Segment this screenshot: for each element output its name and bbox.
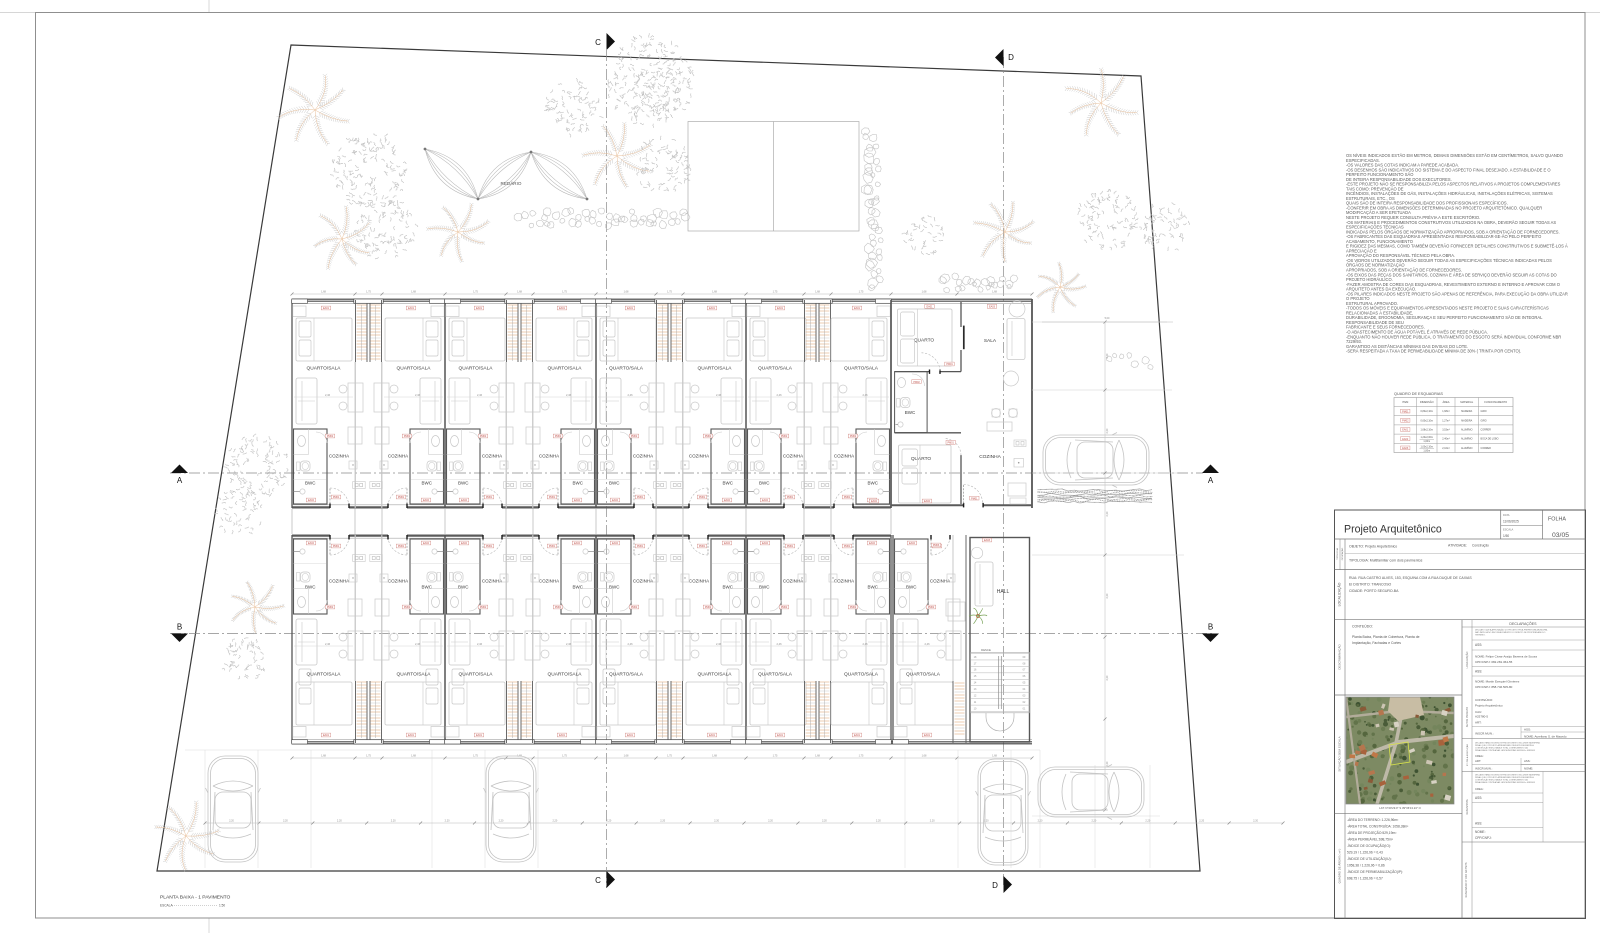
svg-text:AUTOR PROJETO: AUTOR PROJETO: [1466, 707, 1469, 727]
svg-text:1,68: 1,68: [321, 754, 326, 757]
svg-text:EA01: EA01: [408, 307, 415, 310]
svg-text:PM01: PM01: [333, 545, 340, 548]
svg-text:CREA:: CREA:: [1475, 754, 1484, 758]
svg-text:PM01: PM01: [844, 496, 851, 499]
svg-text:2,46: 2,46: [477, 642, 483, 646]
svg-text:2,20: 2,20: [1091, 819, 1096, 822]
svg-text:Planta Baixa, Planta de Cobert: Planta Baixa, Planta de Cobertura, Plant…: [1352, 635, 1420, 639]
svg-text:EA01: EA01: [627, 734, 634, 737]
svg-text:NOME: Aureliano S. de Macedo: NOME: Aureliano S. de Macedo: [1524, 735, 1567, 739]
svg-text:COZINHA: COZINHA: [979, 454, 1001, 460]
svg-text:2,20: 2,20: [229, 819, 234, 822]
svg-text:1,00x2,10m: 1,00x2,10m: [1421, 445, 1434, 448]
svg-text:LOCALIZAÇÃO: LOCALIZAÇÃO: [1337, 582, 1342, 606]
svg-text:1,75: 1,75: [667, 290, 672, 293]
svg-text:EA02: EA02: [1402, 438, 1409, 441]
svg-text:-ÍNDICE DE OCUPAÇÃO(IO):: -ÍNDICE DE OCUPAÇÃO(IO):: [1347, 843, 1391, 848]
svg-text:INSCR.MUN.:: INSCR.MUN.:: [1475, 732, 1494, 736]
svg-text:EA01: EA01: [559, 307, 566, 310]
svg-text:INSCR.MUN.:: INSCR.MUN.:: [1475, 767, 1493, 771]
svg-text:CONTEÚDO:: CONTEÚDO:: [1475, 697, 1493, 702]
svg-text:2,46: 2,46: [566, 393, 572, 397]
svg-text:QUARTO/SALA: QUARTO/SALA: [844, 366, 879, 372]
svg-text:1,75: 1,75: [366, 754, 371, 757]
svg-text:EA01: EA01: [1402, 429, 1409, 432]
svg-text:03/05: 03/05: [1552, 532, 1569, 539]
svg-text:QUARTO/SALA: QUARTO/SALA: [609, 672, 644, 678]
svg-text:ASS:: ASS:: [1524, 759, 1531, 763]
svg-text:COZINHA: COZINHA: [482, 579, 502, 584]
svg-text:A25780-5: A25780-5: [1475, 715, 1488, 719]
svg-text:1,75: 1,75: [859, 290, 864, 293]
svg-text:2,40m²: 2,40m²: [1442, 438, 1450, 441]
svg-text:PM01: PM01: [948, 441, 955, 444]
svg-text:GIRO: GIRO: [1481, 410, 1487, 413]
svg-text:EA02: EA02: [869, 542, 876, 545]
svg-text:2,20: 2,20: [1106, 353, 1109, 358]
svg-text:MATERIAL: MATERIAL: [1460, 400, 1473, 404]
svg-text:2,46: 2,46: [325, 393, 331, 397]
svg-text:EA01: EA01: [777, 734, 784, 737]
svg-text:PM01: PM01: [398, 496, 405, 499]
svg-text:ASS:: ASS:: [1475, 670, 1482, 674]
svg-text:ESCALA: ESCALA: [160, 904, 173, 908]
svg-text:2,20: 2,20: [714, 819, 719, 822]
svg-text:1,75: 1,75: [473, 290, 478, 293]
svg-text:SALA: SALA: [984, 338, 997, 344]
svg-text:1,75: 1,75: [473, 754, 478, 757]
svg-text:1,68: 1,68: [411, 754, 416, 757]
svg-text:1058,38 / 1.226,96 = 0,86: 1058,38 / 1.226,96 = 0,86: [1347, 864, 1385, 868]
svg-text:QUARTO/SALA: QUARTO/SALA: [609, 366, 644, 372]
svg-text:PM01: PM01: [971, 497, 978, 500]
svg-text:ESCALA: ESCALA: [1503, 528, 1514, 532]
svg-text:-ÍNDICE DE PERMEABILIZAÇÃO(IP): -ÍNDICE DE PERMEABILIZAÇÃO(IP):: [1347, 869, 1403, 874]
svg-text:BOCA DE LOBO: BOCA DE LOBO: [1481, 438, 1499, 441]
svg-text:1:50: 1:50: [219, 904, 225, 908]
svg-text:PM02: PM02: [327, 435, 334, 438]
svg-text:C: C: [595, 38, 601, 47]
svg-text:COZINHA: COZINHA: [329, 454, 349, 459]
svg-text:2,46: 2,46: [415, 642, 421, 646]
svg-text:1,68: 1,68: [411, 290, 416, 293]
svg-text:CORRER: CORRER: [1481, 447, 1492, 450]
svg-text:B: B: [1208, 623, 1213, 632]
svg-text:Projeto Arquitetônico: Projeto Arquitetônico: [1475, 704, 1503, 708]
svg-text:DATA: DATA: [1503, 513, 1510, 517]
svg-text:1/50: 1/50: [1503, 534, 1509, 538]
svg-text:2,46: 2,46: [325, 642, 331, 646]
svg-text:1,75: 1,75: [667, 754, 672, 757]
svg-text:OCUPAÇÃO: OCUPAÇÃO: [1341, 548, 1344, 561]
svg-text:COZINHA: COZINHA: [482, 454, 502, 459]
svg-text:2,20: 2,20: [499, 819, 504, 822]
svg-text:1,75: 1,75: [562, 290, 567, 293]
svg-text:ALUMÍNIO: ALUMÍNIO: [1461, 447, 1473, 450]
svg-text:RUA: RUA CASTRO ALVES, 153, E: RUA: RUA CASTRO ALVES, 153, ESQUINA COM …: [1349, 576, 1472, 580]
svg-text:DESCRIMINAÇÃO: DESCRIMINAÇÃO: [1337, 644, 1342, 670]
svg-text:EA02: EA02: [724, 542, 731, 545]
svg-text:EA02: EA02: [308, 499, 315, 502]
svg-text:PM01: PM01: [787, 496, 794, 499]
svg-text:1,75: 1,75: [859, 754, 864, 757]
svg-text:-SERÁ RESPEITADA A TAXA DE PER: -SERÁ RESPEITADA A TAXA DE PERMEABILIDAD…: [1346, 349, 1521, 354]
svg-text:COZINHA: COZINHA: [388, 454, 408, 459]
svg-text:2,46: 2,46: [627, 642, 633, 646]
svg-text:Projeto Arquitetônico: Projeto Arquitetônico: [1344, 524, 1442, 536]
svg-text:PM01: PM01: [549, 545, 556, 548]
svg-text:-ÁREA DO TERRENO: 1.226,96m²: -ÁREA DO TERRENO: 1.226,96m²: [1347, 818, 1399, 822]
svg-text:DESCE: DESCE: [981, 648, 991, 652]
svg-text:EA01: EA01: [709, 734, 716, 737]
svg-text:2,20: 2,20: [606, 819, 611, 822]
svg-text:PM01: PM01: [699, 545, 706, 548]
svg-text:EA02: EA02: [461, 499, 468, 502]
svg-text:EA01: EA01: [709, 307, 716, 310]
svg-text:1,68: 1,68: [624, 290, 629, 293]
svg-text:0,80x2,10m: 0,80x2,10m: [1421, 410, 1434, 413]
svg-text:1,20x2,00m: 1,20x2,00m: [1421, 436, 1434, 439]
svg-text:BWC: BWC: [905, 410, 916, 415]
svg-text:EA01: EA01: [323, 307, 330, 310]
svg-text:EA02: EA02: [461, 542, 468, 545]
svg-text:2,20: 2,20: [391, 819, 396, 822]
svg-text:PM01: PM01: [637, 496, 644, 499]
svg-text:CIDADE: PORTO SEGURO-BA: CIDADE: PORTO SEGURO-BA: [1349, 589, 1399, 593]
svg-text:MADEIRA: MADEIRA: [1461, 419, 1472, 422]
svg-text:PENALIDADE CONTIDA NAS LEIS MU: PENALIDADE CONTIDA NAS LEIS MUNICIPAIS 6…: [1475, 749, 1535, 752]
svg-text:QUARTO/SALA: QUARTO/SALA: [459, 366, 494, 372]
svg-text:2,20: 2,20: [552, 819, 557, 822]
svg-text:PM02: PM02: [404, 606, 411, 609]
svg-text:1,68: 1,68: [815, 290, 820, 293]
svg-text:EA02: EA02: [612, 499, 619, 502]
svg-text:PM02: PM02: [850, 435, 857, 438]
svg-text:BWC: BWC: [609, 481, 620, 486]
svg-text:0,60x2,10m: 0,60x2,10m: [1421, 419, 1434, 422]
svg-text:1,68: 1,68: [922, 754, 927, 757]
svg-text:2,20: 2,20: [337, 819, 342, 822]
svg-text:PM01: PM01: [637, 545, 644, 548]
svg-text:2,46: 2,46: [477, 393, 483, 397]
svg-text:PM02: PM02: [555, 606, 562, 609]
svg-text:2,20: 2,20: [445, 819, 450, 822]
svg-text:CPF/CNPJ: 858.746.505-80: CPF/CNPJ: 858.746.505-80: [1475, 685, 1513, 689]
svg-text:EA02: EA02: [574, 542, 581, 545]
svg-text:CPF/CNPJ: 082.281.364-55: CPF/CNPJ: 082.281.364-55: [1475, 660, 1513, 664]
svg-text:PM01: PM01: [1402, 410, 1409, 413]
svg-text:EA02: EA02: [423, 499, 430, 502]
svg-text:PM02: PM02: [555, 435, 562, 438]
svg-text:HALL: HALL: [997, 589, 1010, 595]
svg-text:PM02: PM02: [705, 606, 712, 609]
svg-text:11/06/2025: 11/06/2025: [1503, 520, 1519, 524]
svg-text:COZINHA: COZINHA: [633, 454, 653, 459]
svg-text:ALUMÍNIO: ALUMÍNIO: [1461, 429, 1473, 432]
svg-text:1,68: 1,68: [321, 290, 326, 293]
svg-text:ASS:: ASS:: [1475, 822, 1482, 826]
svg-text:EA02: EA02: [612, 542, 619, 545]
svg-text:1,75: 1,75: [773, 290, 778, 293]
svg-text:2,20: 2,20: [1145, 819, 1150, 822]
svg-text:COZINHA: COZINHA: [329, 579, 349, 584]
svg-text:1,68x2,10m: 1,68x2,10m: [1421, 429, 1434, 432]
svg-text:PM01: PM01: [398, 545, 405, 548]
svg-text:EA01: EA01: [559, 734, 566, 737]
svg-text:2,20: 2,20: [1106, 675, 1109, 680]
svg-text:2,46: 2,46: [862, 393, 868, 397]
svg-text:-ÁREA TOTAL CONSTRUÍDA: 1058,3: -ÁREA TOTAL CONSTRUÍDA: 1058,38m²: [1347, 825, 1409, 829]
svg-text:1,68: 1,68: [815, 754, 820, 757]
svg-text:EI DISTRITO: TRANCOSO: EI DISTRITO: TRANCOSO: [1349, 583, 1392, 587]
svg-text:EA02: EA02: [423, 542, 430, 545]
svg-text:RT. PELA EXECUÇÃO: RT. PELA EXECUÇÃO: [1466, 744, 1469, 767]
svg-text:1,68m²: 1,68m²: [1442, 410, 1450, 413]
svg-text:QUARTO/SALA: QUARTO/SALA: [698, 366, 733, 372]
svg-text:2,46: 2,46: [776, 393, 782, 397]
svg-text:BWC: BWC: [759, 481, 770, 486]
svg-text:2,46: 2,46: [566, 642, 572, 646]
svg-text:BWC: BWC: [422, 481, 433, 486]
svg-text:2,46: 2,46: [415, 393, 421, 397]
svg-text:PM02: PM02: [1402, 419, 1409, 422]
svg-text:ART:: ART:: [1475, 759, 1481, 763]
svg-text:D: D: [992, 881, 998, 890]
svg-text:EA01: EA01: [476, 307, 483, 310]
svg-text:NÃO IMPLICA NO RECONHECIMENTO: NÃO IMPLICA NO RECONHECIMENTO DO DIREITO…: [1475, 631, 1546, 634]
svg-text:2,10m²: 2,10m²: [1442, 447, 1450, 450]
svg-text:SITUAÇÃO SEM ESCALA: SITUAÇÃO SEM ESCALA: [1337, 736, 1342, 771]
svg-text:DECLARAÇÕES: DECLARAÇÕES: [1509, 621, 1537, 626]
svg-text:NOME: Felipe Cézar Araújo Beze: NOME: Felipe Cézar Araújo Bezerra de Sou…: [1475, 655, 1537, 659]
svg-text:D: D: [1008, 53, 1014, 62]
svg-text:1,68: 1,68: [922, 290, 927, 293]
svg-text:QUARTO/SALA: QUARTO/SALA: [758, 366, 793, 372]
svg-text:2,20: 2,20: [1106, 761, 1109, 766]
svg-text:ASS:: ASS:: [1475, 796, 1482, 800]
svg-text:PM02: PM02: [480, 606, 487, 609]
svg-text:BWC: BWC: [305, 481, 316, 486]
svg-text:ASS:: ASS:: [1475, 643, 1482, 647]
svg-text:2,20: 2,20: [1253, 819, 1258, 822]
svg-text:1,00m: 1,00m: [1423, 440, 1430, 443]
svg-text:EA01: EA01: [323, 734, 330, 737]
svg-text:PM02: PM02: [631, 435, 638, 438]
svg-text:C: C: [595, 876, 601, 885]
svg-text:EA02: EA02: [871, 500, 878, 503]
svg-text:2,20: 2,20: [1199, 819, 1204, 822]
svg-text:EA01: EA01: [927, 305, 934, 308]
svg-text:EA02: EA02: [762, 542, 769, 545]
svg-text:ÁREA: ÁREA: [1442, 400, 1449, 404]
svg-text:EA01: EA01: [854, 734, 861, 737]
svg-text:QUARTO/SALA: QUARTO/SALA: [844, 672, 879, 678]
svg-text:2,20: 2,20: [984, 819, 989, 822]
svg-text:529,19 / 1.226,96 = 0,43: 529,19 / 1.226,96 = 0,43: [1347, 851, 1383, 855]
svg-text:RESERVADO P/ USO DA PMPS: RESERVADO P/ USO DA PMPS: [1465, 862, 1468, 897]
svg-text:-ÍNDICE DE UTILIZAÇÃO(IU):: -ÍNDICE DE UTILIZAÇÃO(IU):: [1347, 856, 1392, 861]
svg-text:CORRER: CORRER: [1481, 429, 1492, 432]
svg-text:E RIGIDEZ DAS MESMAS, COMO TAM: E RIGIDEZ DAS MESMAS, COMO TAMBÉM DEVERÃ…: [1346, 244, 1568, 249]
svg-text:1,68: 1,68: [712, 290, 717, 293]
svg-text:EA02: EA02: [762, 499, 769, 502]
svg-text:-ÁREA DE PROJEÇÃO:529,19m²: -ÁREA DE PROJEÇÃO:529,19m²: [1347, 830, 1397, 835]
svg-text:QUARTO/SALA: QUARTO/SALA: [698, 672, 733, 678]
svg-text:Construção: Construção: [1472, 544, 1489, 548]
svg-text:EA02: EA02: [724, 499, 731, 502]
svg-text:COZINHA: COZINHA: [834, 454, 854, 459]
svg-text:BWC: BWC: [573, 481, 584, 486]
svg-text:QUARTO/SALA: QUARTO/SALA: [548, 366, 583, 372]
svg-text:GIRO: GIRO: [1481, 419, 1487, 422]
svg-text:PM02: PM02: [781, 435, 788, 438]
svg-text:PM01: PM01: [699, 496, 706, 499]
svg-text:EA01: EA01: [627, 307, 634, 310]
svg-text:EA01: EA01: [408, 734, 415, 737]
svg-text:PM01: PM01: [333, 496, 340, 499]
svg-text:FUNCIONAMENTO: FUNCIONAMENTO: [1484, 400, 1507, 404]
svg-text:A: A: [177, 476, 183, 485]
svg-text:698,75 / 1.226,96 = 0,57: 698,75 / 1.226,96 = 0,57: [1347, 877, 1383, 881]
svg-text:EA02: EA02: [909, 542, 916, 545]
svg-text:2,20: 2,20: [1106, 511, 1109, 516]
svg-text:MADEIRA: MADEIRA: [1461, 410, 1472, 413]
svg-text:TIPOLOGIA: Multifamiliar com d: TIPOLOGIA: Multifamiliar com dois pavime…: [1349, 559, 1423, 563]
svg-text:QUARTO: QUARTO: [911, 456, 932, 462]
svg-text:PM01: PM01: [486, 545, 493, 548]
svg-text:EA02: EA02: [308, 542, 315, 545]
svg-text:PM01: PM01: [549, 496, 556, 499]
svg-text:PM02: PM02: [705, 435, 712, 438]
svg-text:2,20: 2,20: [822, 819, 827, 822]
svg-text:BWC: BWC: [458, 481, 469, 486]
svg-text:QUARTO/SALA: QUARTO/SALA: [307, 366, 342, 372]
svg-text:CREA:: CREA:: [1475, 787, 1484, 791]
svg-text:EA01: EA01: [476, 734, 483, 737]
svg-text:QUADRO DE ÁREAS ( m² ): QUADRO DE ÁREAS ( m² ): [1338, 849, 1342, 884]
svg-text:NOME:: NOME:: [1524, 767, 1533, 771]
svg-text:-ENQUANTO NÃO HOUVER REDE PÚBL: -ENQUANTO NÃO HOUVER REDE PÚBLICA, O TRA…: [1346, 334, 1561, 339]
svg-text:QUARTO/SALA: QUARTO/SALA: [758, 672, 793, 678]
svg-text:TIPOLOGIA: TIPOLOGIA: [1336, 548, 1339, 560]
svg-text:QUARTO/SALA: QUARTO/SALA: [397, 672, 432, 678]
svg-text:ALUMÍNIO: ALUMÍNIO: [1461, 438, 1473, 441]
svg-text:EA02: EA02: [924, 500, 931, 503]
svg-text:1,00m: 1,00m: [1423, 449, 1430, 452]
svg-text:ATIVIDADE:: ATIVIDADE:: [1448, 544, 1467, 548]
svg-text:NOME:: NOME:: [1475, 830, 1486, 834]
svg-text:PM03: PM03: [933, 544, 940, 547]
svg-text:PM02: PM02: [913, 381, 920, 384]
svg-text:EA01: EA01: [924, 734, 931, 737]
svg-text:1,27m²: 1,27m²: [1442, 419, 1450, 422]
svg-text:5,00: 5,00: [1105, 317, 1110, 320]
svg-text:PM02: PM02: [480, 435, 487, 438]
svg-text:B: B: [177, 623, 182, 632]
svg-text:LAT: N°20'29.0" S 39°06'13.24": LAT: N°20'29.0" S 39°06'13.24" O: [1379, 806, 1421, 810]
svg-text:2,46: 2,46: [776, 642, 782, 646]
svg-text:2,20: 2,20: [1038, 819, 1043, 822]
svg-text:QUARTO/SALA: QUARTO/SALA: [906, 672, 941, 678]
svg-text:2,46: 2,46: [627, 393, 633, 397]
svg-text:2,46: 2,46: [716, 642, 722, 646]
svg-text:TERRENO.: TERRENO.: [1475, 635, 1486, 637]
svg-text:1,68: 1,68: [712, 754, 717, 757]
svg-text:2,20: 2,20: [876, 819, 881, 822]
svg-text:ART:: ART:: [1475, 721, 1482, 725]
svg-text:EA03: EA03: [989, 305, 996, 308]
svg-text:PM01: PM01: [486, 496, 493, 499]
svg-text:-ÁREA PERMEÁVEL:698,75m²: -ÁREA PERMEÁVEL:698,75m²: [1347, 838, 1394, 842]
svg-text:1,75: 1,75: [773, 754, 778, 757]
svg-text:PM02: PM02: [850, 606, 857, 609]
svg-text:2,20: 2,20: [1106, 593, 1109, 598]
svg-text:QUARTO: QUARTO: [914, 338, 935, 344]
svg-text:CPF/CNPJ:: CPF/CNPJ:: [1475, 836, 1492, 840]
svg-text:Implantação, Fachadas e Cortes: Implantação, Fachadas e Cortes: [1352, 641, 1401, 645]
svg-text:COZINHA: COZINHA: [689, 579, 709, 584]
svg-text:3,53m²: 3,53m²: [1442, 429, 1450, 432]
svg-text:CONTEÚDO:: CONTEÚDO:: [1352, 625, 1373, 629]
svg-text:COZINHA: COZINHA: [539, 579, 559, 584]
svg-text:EA01: EA01: [777, 307, 784, 310]
svg-text:EA01: EA01: [854, 307, 861, 310]
svg-text:ITEM: ITEM: [1402, 400, 1408, 404]
svg-text:EA03: EA03: [1402, 447, 1409, 450]
svg-text:FOLHA: FOLHA: [1548, 517, 1566, 523]
svg-text:PM01: PM01: [844, 545, 851, 548]
svg-text:COZINHA: COZINHA: [783, 579, 803, 584]
svg-text:1,75: 1,75: [562, 754, 567, 757]
svg-text:COZINHA: COZINHA: [689, 454, 709, 459]
svg-text:COZINHA: COZINHA: [388, 579, 408, 584]
svg-text:BWC: BWC: [868, 481, 879, 486]
svg-text:PENALIDADE CONTIDA NAS LEIS MU: PENALIDADE CONTIDA NAS LEIS MUNICIPAIS 6…: [1475, 781, 1535, 784]
svg-text:PM02: PM02: [781, 606, 788, 609]
svg-text:2,20: 2,20: [283, 819, 288, 822]
svg-text:NOME: Martín Ezequiel Giménez: NOME: Martín Ezequiel Giménez: [1475, 680, 1520, 684]
svg-text:QUARTO/SALA: QUARTO/SALA: [459, 672, 494, 678]
svg-text:2,20: 2,20: [660, 819, 665, 822]
svg-text:LOCALIZAÇÃO: LOCALIZAÇÃO: [1466, 651, 1469, 668]
svg-text:1,75: 1,75: [366, 290, 371, 293]
svg-text:CAU:: CAU:: [1475, 710, 1482, 714]
svg-text:QUARTO/SALA: QUARTO/SALA: [548, 672, 583, 678]
svg-text:BWC: BWC: [723, 481, 734, 486]
svg-text:2,46: 2,46: [924, 642, 930, 646]
svg-text:A: A: [1208, 476, 1214, 485]
svg-text:1,68: 1,68: [992, 290, 997, 293]
svg-text:EA02: EA02: [574, 499, 581, 502]
svg-text:QUARTO/SALA: QUARTO/SALA: [307, 672, 342, 678]
svg-text:2,46: 2,46: [862, 642, 868, 646]
svg-text:2,20: 2,20: [930, 819, 935, 822]
svg-text:PLANTA BAIXA - 1 PAVIMENTO: PLANTA BAIXA - 1 PAVIMENTO: [160, 895, 230, 901]
svg-text:2,46: 2,46: [716, 393, 722, 397]
svg-text:OBJETO: Projeto Arquitetônico: OBJETO: Projeto Arquitetônico: [1349, 545, 1397, 549]
svg-text:PM02: PM02: [631, 606, 638, 609]
svg-text:COZINHA: COZINHA: [539, 454, 559, 459]
svg-text:QUADRO DE ESQUADRIAS: QUADRO DE ESQUADRIAS: [1394, 392, 1443, 396]
svg-text:REDÁRIO: REDÁRIO: [501, 180, 522, 186]
svg-text:2,20: 2,20: [768, 819, 773, 822]
svg-text:PM01: PM01: [946, 363, 953, 366]
svg-text:1,68: 1,68: [992, 754, 997, 757]
svg-text:COZINHA: COZINHA: [783, 454, 803, 459]
svg-text:PM01: PM01: [787, 545, 794, 548]
svg-text:QUARTO/SALA: QUARTO/SALA: [397, 366, 432, 372]
svg-text:2,20: 2,20: [1106, 428, 1109, 433]
